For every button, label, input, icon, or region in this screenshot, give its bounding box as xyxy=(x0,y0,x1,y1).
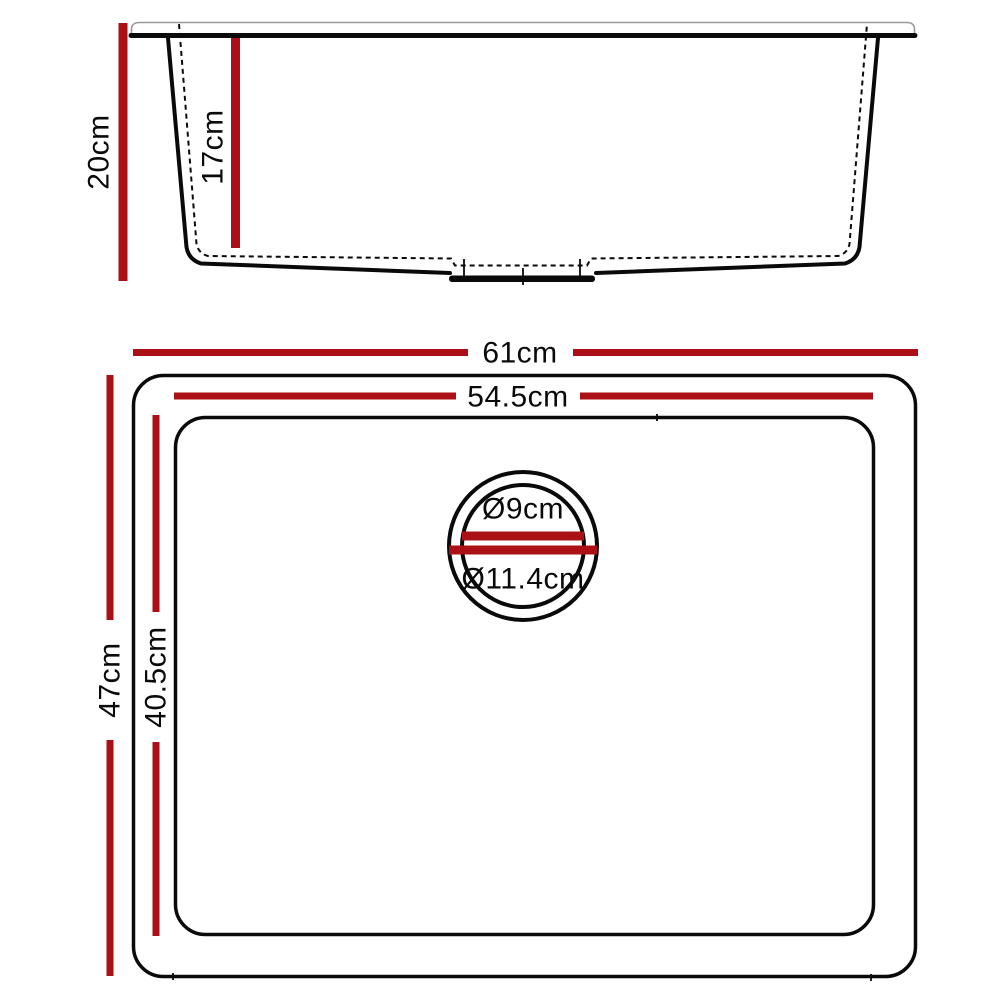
bowl-depth-dimension-line xyxy=(231,38,240,248)
diagram-svg: 20cm 17cm 61cm 54.5cm xyxy=(0,0,1000,1000)
bowl-length-dimension-label: 40.5cm xyxy=(140,626,173,727)
width-dimension-label: 61cm xyxy=(482,337,557,370)
height-dimension-line xyxy=(119,23,128,281)
height-dimension-label: 20cm xyxy=(83,114,116,189)
drain-outer-diameter-line xyxy=(449,546,597,555)
bowl-width-dimension-label: 54.5cm xyxy=(467,381,568,414)
top-view: 61cm 54.5cm 47cm 40.5cm Ø9cm Ø11.4cm xyxy=(94,337,919,982)
side-view: 20cm 17cm xyxy=(83,23,916,286)
width-dimension-line-left xyxy=(133,349,468,356)
width-dimension-line-right xyxy=(573,349,918,356)
sink-dimension-diagram: 20cm 17cm 61cm 54.5cm xyxy=(0,0,1000,1000)
bowl-width-dimension-line-left xyxy=(174,393,456,400)
sink-outer-rect xyxy=(134,376,916,977)
bowl-inner-outline-dashed xyxy=(179,24,867,266)
drain-inner-diameter-line xyxy=(462,532,584,541)
bowl-length-dimension-line-bottom xyxy=(153,742,160,936)
depth-dimension-line-top xyxy=(107,375,114,620)
drain-inner-diameter-label: Ø9cm xyxy=(482,493,564,526)
bowl-length-dimension-line-top xyxy=(153,415,160,612)
bowl-width-dimension-line-right xyxy=(580,393,873,400)
rim-profile-outline xyxy=(132,23,915,34)
sink-wall-right xyxy=(596,38,878,273)
depth-dimension-label: 47cm xyxy=(94,642,127,717)
drain-outlet xyxy=(449,276,595,283)
bowl-depth-dimension-label: 17cm xyxy=(197,109,230,184)
depth-dimension-line-bottom xyxy=(107,740,114,976)
drain-outer-diameter-label: Ø11.4cm xyxy=(462,563,585,596)
